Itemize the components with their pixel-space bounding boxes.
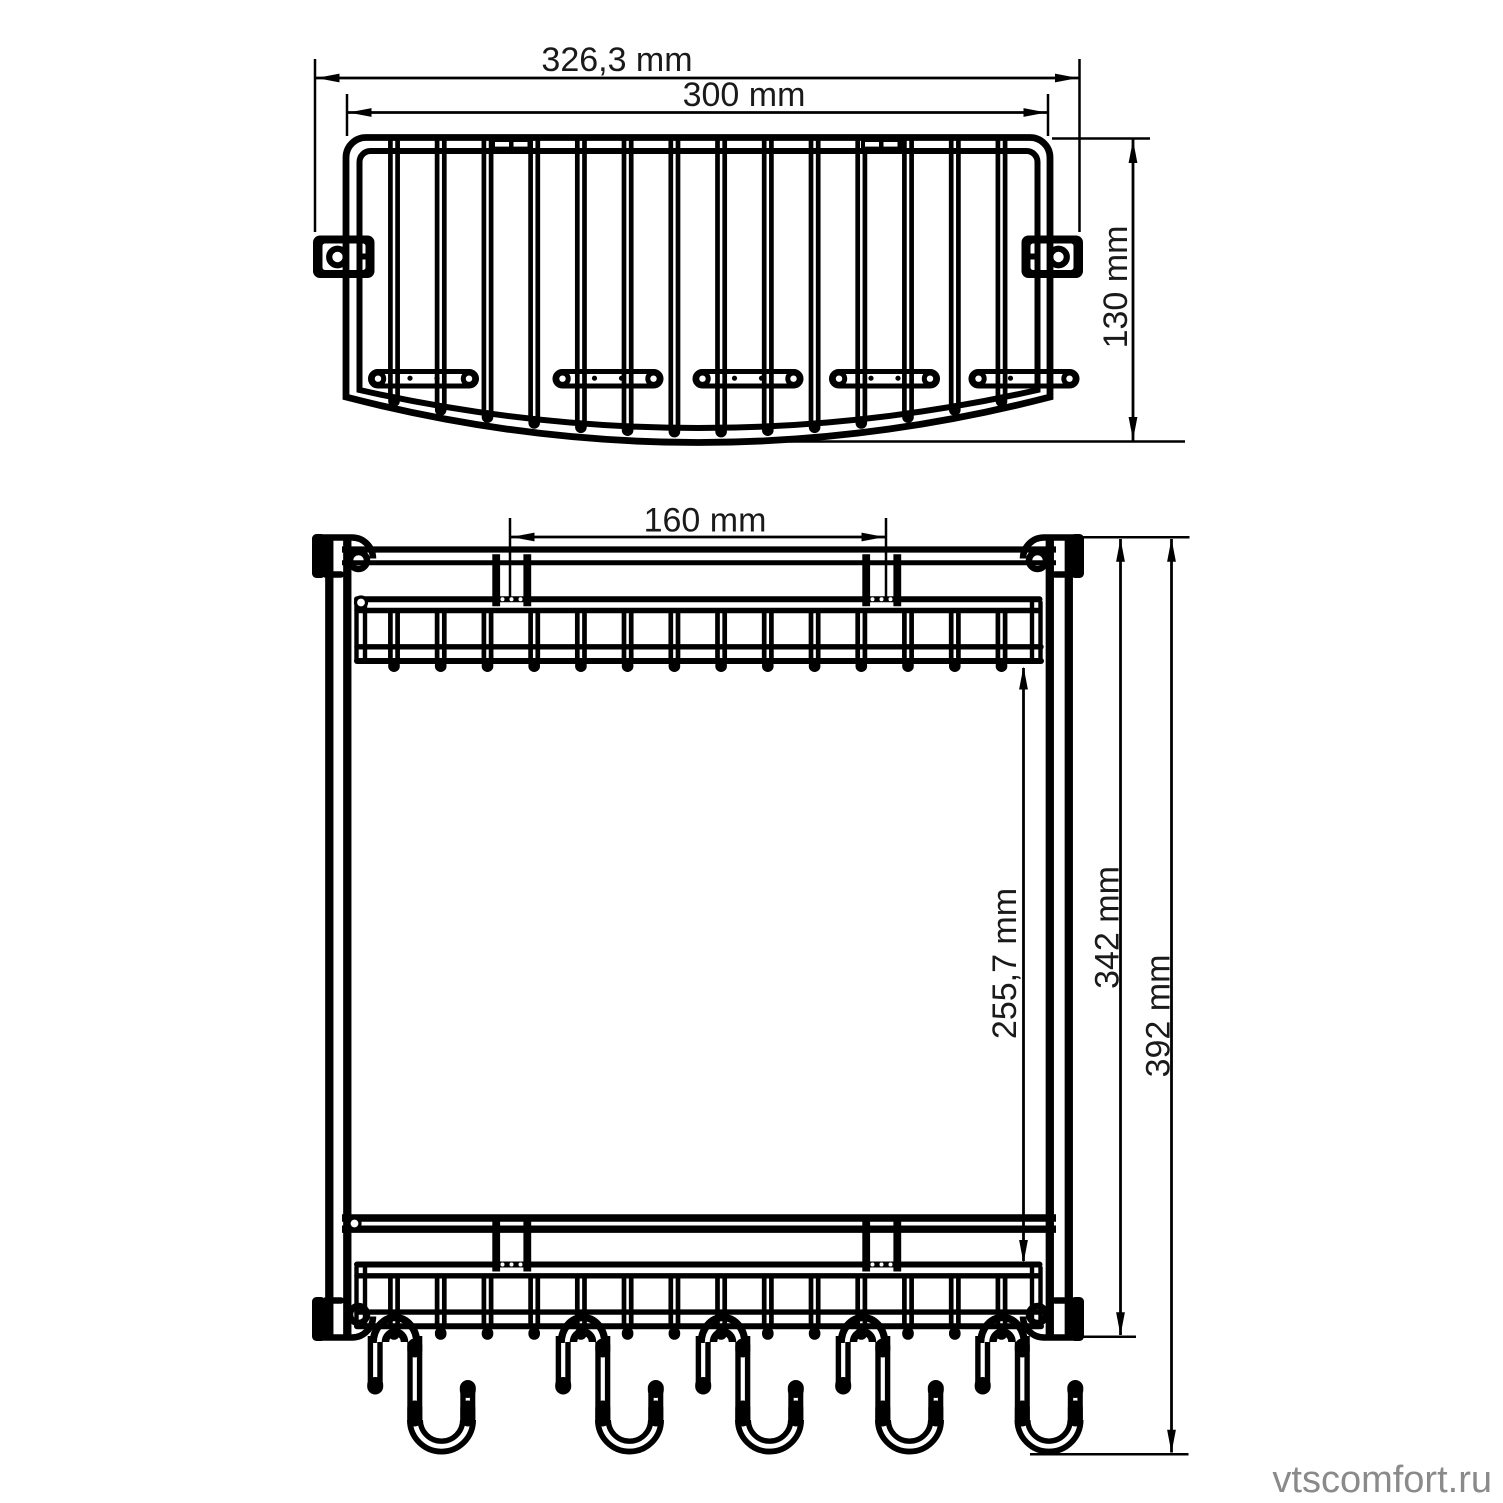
svg-text:130 mm: 130 mm [1097, 226, 1135, 349]
svg-text:160 mm: 160 mm [644, 502, 767, 540]
svg-text:392 mm: 392 mm [1140, 955, 1178, 1078]
svg-text:300 mm: 300 mm [683, 76, 806, 114]
svg-text:255,7 mm: 255,7 mm [986, 888, 1024, 1039]
svg-text:342 mm: 342 mm [1089, 866, 1127, 989]
svg-text:326,3 mm: 326,3 mm [541, 41, 692, 79]
svg-text:vtscomfort.ru: vtscomfort.ru [1272, 1459, 1492, 1501]
